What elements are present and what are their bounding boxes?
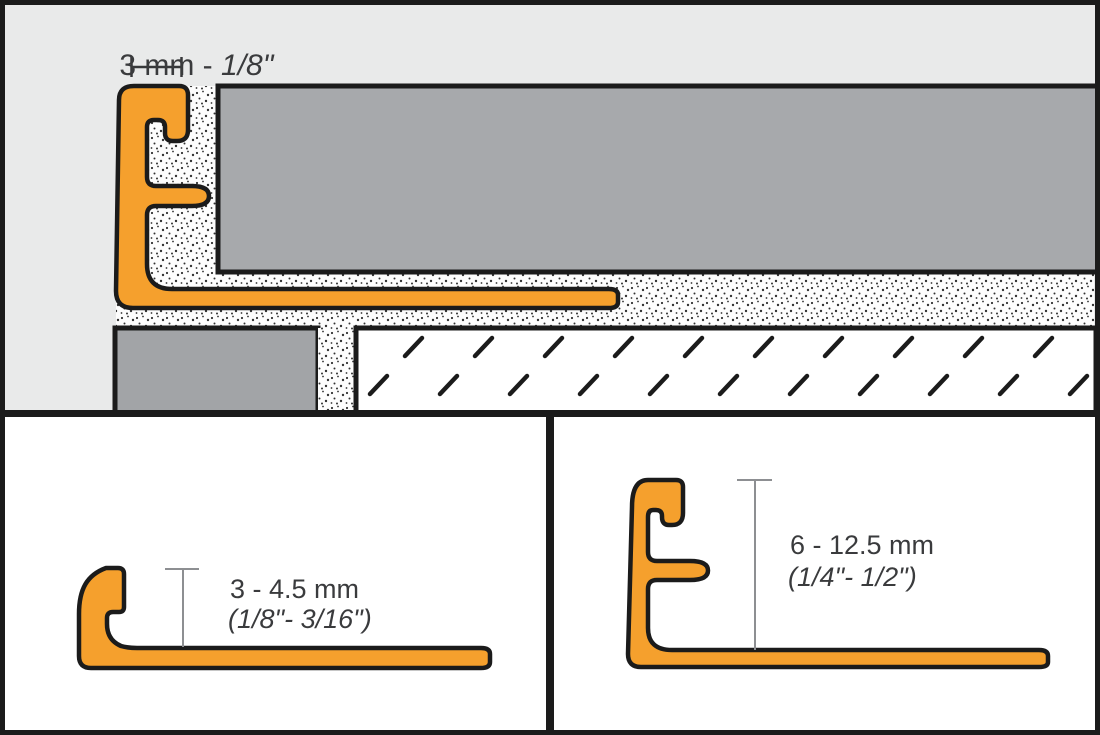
height-range-imperial-label: (1/4"- 1/2") — [788, 564, 917, 591]
panel-divider-vertical — [546, 410, 554, 735]
height-range-imperial-label: (1/8"- 3/16") — [228, 606, 372, 633]
adjacent-covering — [115, 328, 318, 414]
dimension-label-top: 3 mm - 1/8" — [86, 21, 273, 111]
profile-low-height-panel: 3 - 4.5 mm (1/8"- 3/16") — [0, 417, 550, 735]
dimension-label-imperial: 1/8" — [221, 49, 273, 82]
tile — [218, 86, 1098, 272]
mortar-joint-lower — [318, 328, 356, 416]
dimension-label-metric: 3 mm - — [119, 49, 221, 82]
height-range-metric-label: 6 - 12.5 mm — [790, 532, 934, 559]
substrate-hatch — [356, 328, 1096, 414]
profile-tall-height-panel: 6 - 12.5 mm (1/4"- 1/2") — [550, 417, 1100, 735]
installation-cross-section-panel: 3 mm - 1/8" — [0, 0, 1100, 417]
height-range-metric-label: 3 - 4.5 mm — [230, 576, 359, 603]
